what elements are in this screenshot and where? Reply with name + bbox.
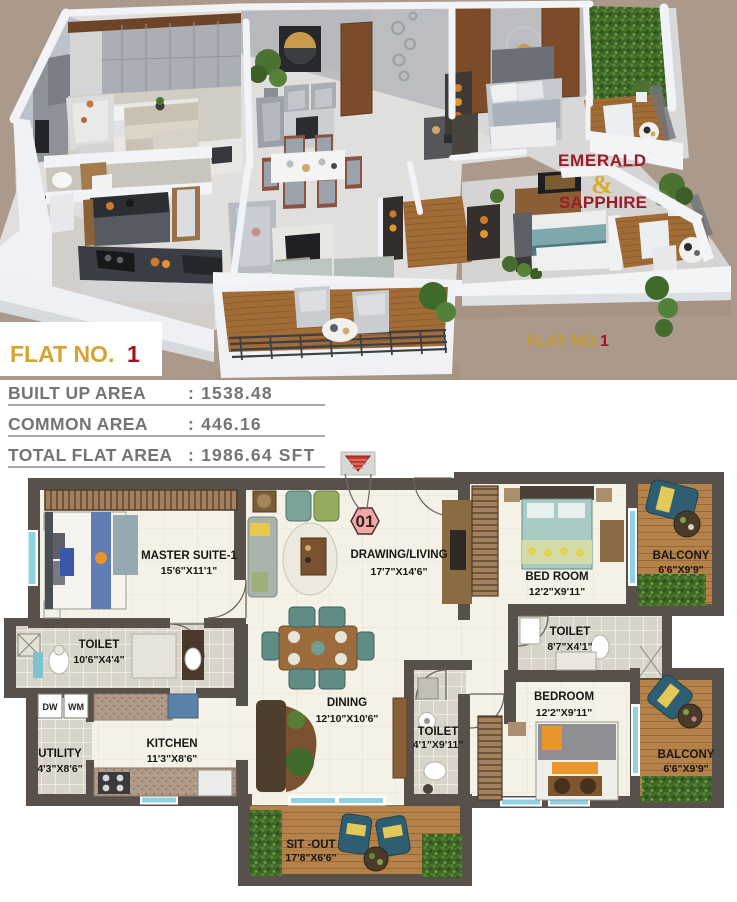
svg-text:12'2"X9'11": 12'2"X9'11" — [536, 707, 592, 719]
svg-text:TOILET: TOILET — [79, 639, 120, 651]
svg-text:1: 1 — [127, 341, 140, 367]
svg-text:DRAWING/LIVING: DRAWING/LIVING — [350, 549, 447, 561]
svg-text:COMMON AREA: COMMON AREA — [8, 414, 148, 434]
svg-text:DW: DW — [43, 702, 58, 712]
svg-text:TOILET: TOILET — [550, 626, 591, 638]
svg-text:4'1"X9'11": 4'1"X9'11" — [413, 739, 464, 751]
svg-text:11'3"X8'6": 11'3"X8'6" — [147, 753, 198, 765]
svg-text:TOTAL FLAT AREA: TOTAL FLAT AREA — [8, 445, 172, 465]
svg-text:10'6"X4'4": 10'6"X4'4" — [73, 654, 124, 666]
svg-text:EMERALD: EMERALD — [558, 151, 646, 170]
svg-text:FLAT NO.: FLAT NO. — [527, 333, 600, 350]
svg-text:KITCHEN: KITCHEN — [146, 738, 197, 750]
svg-text:8'7"X4'1": 8'7"X4'1" — [547, 641, 592, 653]
svg-text:BUILT UP AREA: BUILT UP AREA — [8, 383, 146, 403]
svg-text:FLAT NO.: FLAT NO. — [10, 341, 114, 367]
svg-text:SAPPHIRE: SAPPHIRE — [559, 193, 647, 212]
svg-text:DINING: DINING — [327, 697, 367, 709]
svg-text:TOILET: TOILET — [418, 726, 459, 738]
svg-text:1: 1 — [600, 333, 609, 350]
svg-text:BALCONY: BALCONY — [653, 550, 710, 562]
svg-text:MASTER SUITE-1: MASTER SUITE-1 — [141, 550, 237, 562]
svg-text:BEDROOM: BEDROOM — [534, 691, 594, 703]
svg-text:12'10"X10'6": 12'10"X10'6" — [316, 713, 379, 725]
svg-text:SIT -OUT: SIT -OUT — [286, 839, 335, 851]
svg-text:6'6"X9'9": 6'6"X9'9" — [663, 763, 708, 775]
svg-text:: 1538.48: : 1538.48 — [188, 383, 273, 403]
svg-text:6'6"X9'9": 6'6"X9'9" — [658, 564, 703, 576]
svg-text:UTILITY: UTILITY — [38, 748, 82, 760]
svg-text:BALCONY: BALCONY — [658, 749, 715, 761]
svg-text:4'3"X8'6": 4'3"X8'6" — [37, 763, 82, 775]
svg-text:17'8"X6'6": 17'8"X6'6" — [285, 852, 336, 864]
svg-text:12'2"X9'11": 12'2"X9'11" — [529, 586, 585, 598]
svg-text:: 1986.64 SFT: : 1986.64 SFT — [188, 445, 315, 465]
svg-text:15'6"X11'1": 15'6"X11'1" — [161, 565, 217, 577]
svg-text:01: 01 — [356, 512, 375, 531]
svg-text:WM: WM — [68, 702, 84, 712]
svg-text:BED ROOM: BED ROOM — [525, 571, 588, 583]
svg-text:17'7"X14'6": 17'7"X14'6" — [371, 566, 428, 578]
svg-text:: 446.16: : 446.16 — [188, 414, 262, 434]
